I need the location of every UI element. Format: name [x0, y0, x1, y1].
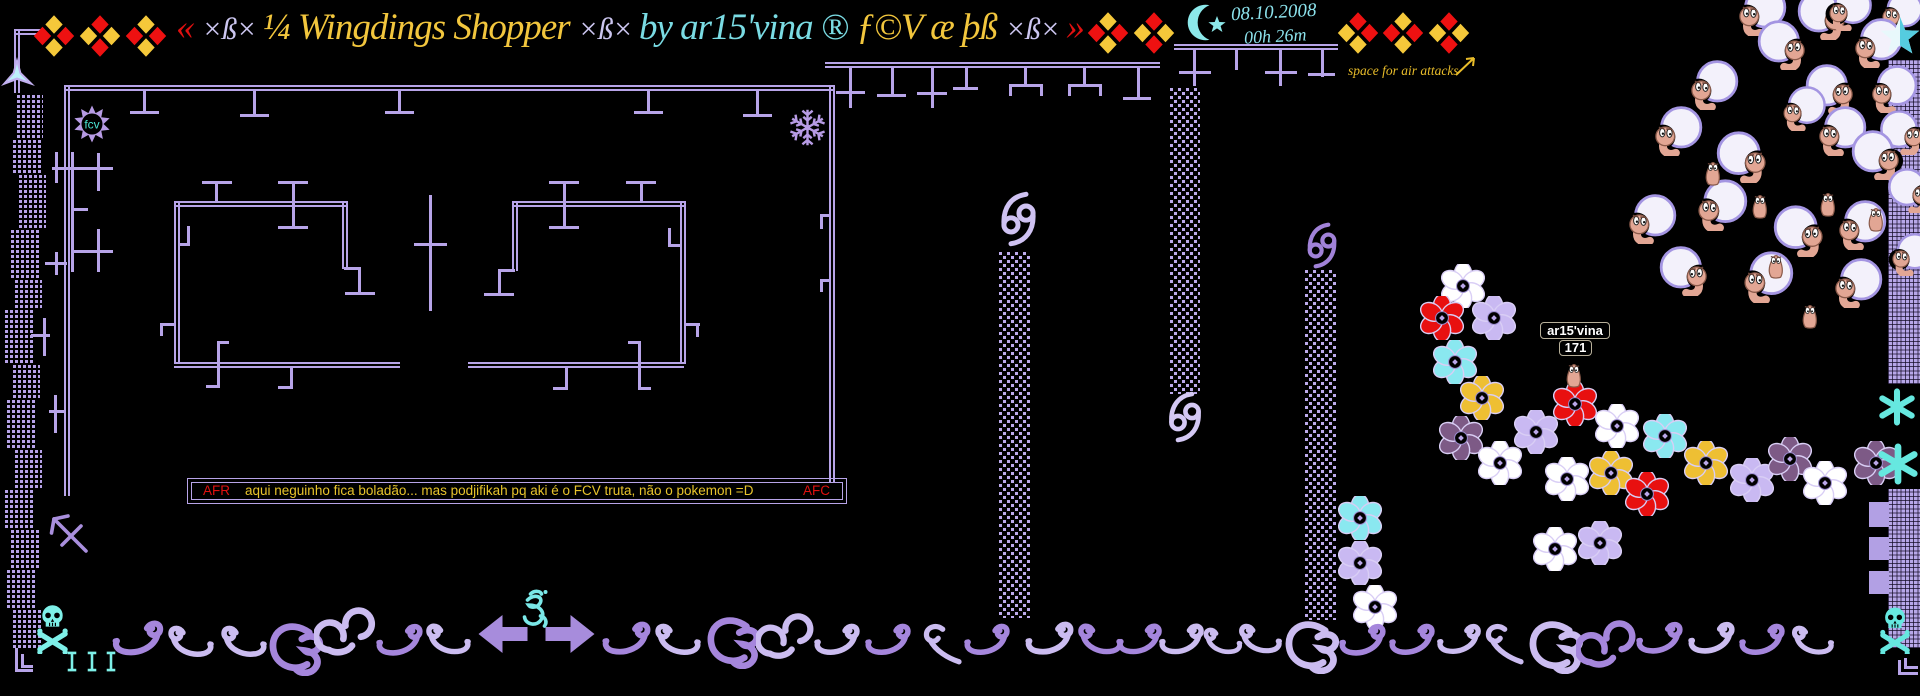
svg-text:fcv: fcv	[84, 118, 99, 132]
